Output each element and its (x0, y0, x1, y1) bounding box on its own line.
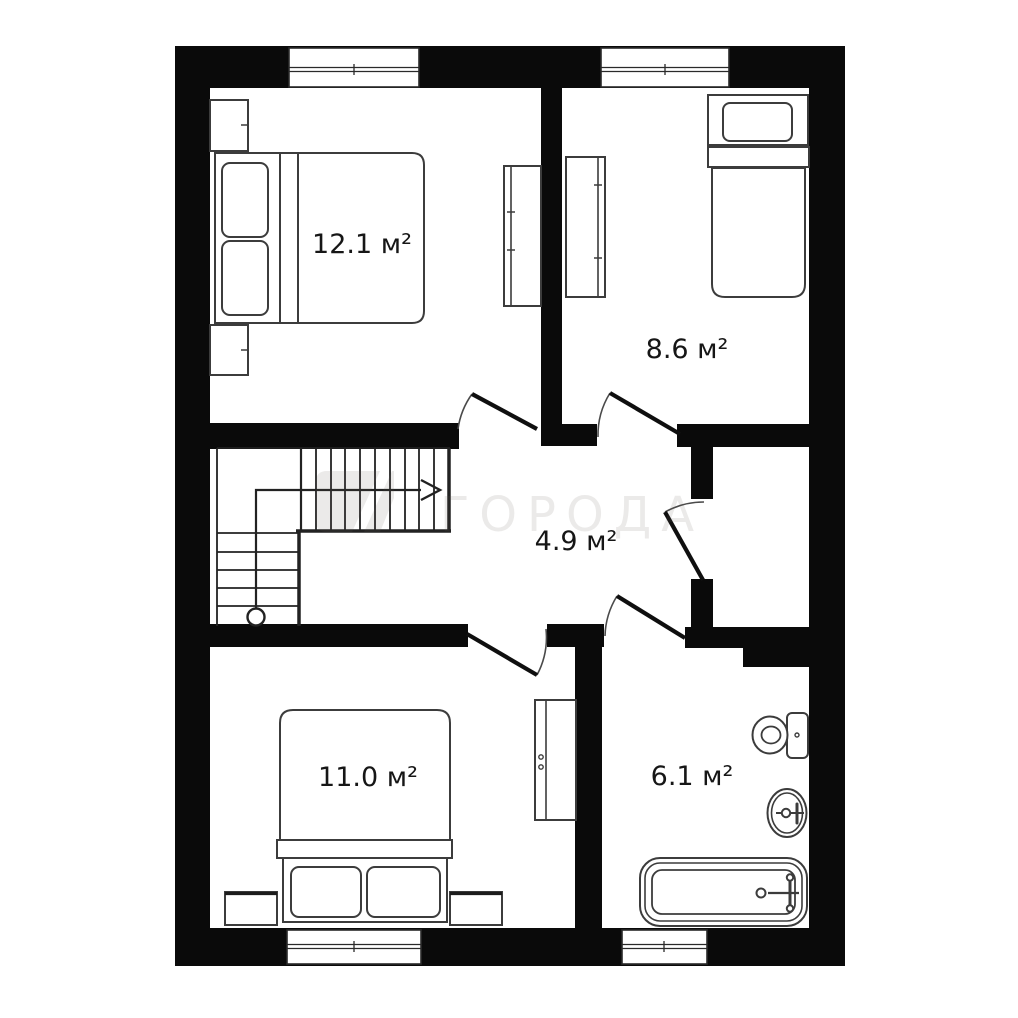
wall-exterior-bottom (175, 928, 845, 966)
floor-plan-image: ГОРОДА 12.1 м² 8.6 м² 4.9 м² 11.0 м² 6.1… (0, 0, 1018, 1018)
wardrobe-body (535, 700, 576, 820)
nightstand (225, 892, 277, 925)
window-top-right (601, 48, 729, 87)
pillow (222, 163, 268, 237)
bathtub-faucet-handle (787, 905, 793, 911)
double-bed (277, 710, 452, 922)
single-bed (708, 95, 809, 297)
wall-exterior-left (175, 46, 210, 966)
pillow (222, 241, 268, 315)
wardrobe (504, 166, 541, 306)
wall-above-bathroom-west (547, 624, 604, 647)
sink (768, 789, 807, 837)
toilet (753, 713, 809, 758)
pillow (291, 867, 361, 917)
pillow (723, 103, 792, 141)
window-bottom-bathroom (622, 930, 707, 964)
bed-divider-bar (280, 153, 298, 323)
wardrobe (566, 157, 605, 297)
wardrobe (535, 700, 576, 820)
bathtub-drain (757, 889, 766, 898)
wall-above-bathroom-east (685, 627, 810, 648)
nightstand (450, 892, 502, 925)
bathtub-faucet-handle (787, 874, 793, 880)
wardrobe-body (504, 166, 541, 306)
floor-plan-svg: ГОРОДА 12.1 м² 8.6 м² 4.9 м² 11.0 м² 6.1… (0, 0, 1018, 1018)
area-label-bedroom-top-left: 12.1 м² (312, 229, 412, 260)
wall-below-bedroom-top-right (677, 424, 810, 447)
wall-between-bedroom-and-bathroom (575, 647, 602, 928)
wall-below-bedroom-top-left (210, 423, 459, 449)
wall-stub-center-top (541, 424, 597, 446)
area-label-bathroom: 6.1 м² (651, 761, 734, 792)
wall-between-top-bedrooms (541, 87, 562, 446)
bathtub (640, 858, 807, 926)
toilet-bowl (753, 717, 788, 754)
mattress (712, 168, 805, 297)
pillow (367, 867, 440, 917)
toilet-tank (787, 713, 808, 758)
sink-drain (782, 809, 790, 817)
stair-start-circle (248, 609, 265, 626)
bed-divider-bar (708, 147, 809, 167)
window-bottom-left (287, 930, 421, 964)
wall-exterior-right (809, 46, 845, 966)
area-label-bedroom-bottom-left: 11.0 м² (318, 762, 418, 793)
area-label-bedroom-top-right: 8.6 м² (646, 334, 729, 365)
wall-bathroom-top-thick (743, 648, 845, 667)
wall-above-bedroom-bottom-left (210, 624, 468, 647)
wardrobe-body (566, 157, 605, 297)
bed-divider-bar (277, 840, 452, 858)
wall-exterior-top (175, 46, 845, 88)
area-label-hallway: 4.9 м² (535, 526, 618, 557)
window-top-left (289, 48, 419, 87)
